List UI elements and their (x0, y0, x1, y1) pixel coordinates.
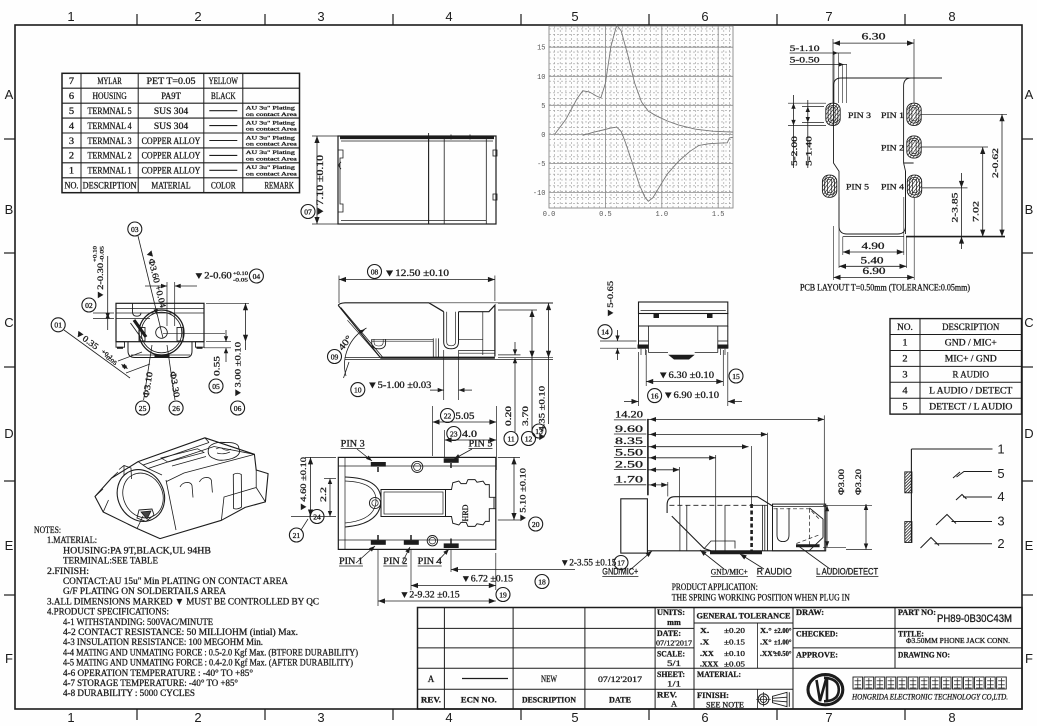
svg-text:-0.05: -0.05 (100, 246, 106, 262)
svg-text:5: 5 (571, 9, 578, 24)
svg-text:26: 26 (172, 404, 180, 413)
svg-text:3: 3 (317, 710, 324, 725)
svg-text:NO.: NO. (897, 322, 913, 332)
svg-text:4: 4 (445, 710, 452, 725)
svg-text:PCB LAYOUT T=0.50mm (TOLERANCE: PCB LAYOUT T=0.50mm (TOLERANCE:0.05mm) (800, 283, 970, 293)
svg-text:COPPER ALLOY: COPPER ALLOY (142, 151, 201, 161)
svg-text:▼2-0.30: ▼2-0.30 (95, 262, 105, 300)
svg-text:PH89-0B30C43M: PH89-0B30C43M (937, 613, 1012, 625)
svg-text:REMARK: REMARK (264, 181, 294, 191)
svg-text:5.40: 5.40 (861, 256, 884, 266)
svg-text:on contact Area: on contact Area (246, 142, 298, 148)
svg-text:0.20: 0.20 (503, 405, 513, 426)
svg-text:15: 15 (537, 45, 545, 53)
svg-text:GENERAL TOLERANCE: GENERAL TOLERANCE (697, 611, 791, 621)
svg-text:6: 6 (69, 91, 75, 101)
svg-text:15: 15 (732, 372, 740, 381)
svg-text:2: 2 (194, 710, 201, 725)
svg-text:L AUDIO / DETECT: L AUDIO / DETECT (929, 385, 1013, 395)
svg-text:PIN 3: PIN 3 (848, 110, 872, 120)
svg-text:SEE NOTE: SEE NOTE (706, 701, 744, 710)
svg-text:.XXX: .XXX (700, 660, 719, 669)
svg-text:1.0: 1.0 (655, 211, 668, 219)
svg-text:-10: -10 (533, 190, 546, 198)
svg-text:MATERIAL:: MATERIAL: (697, 670, 741, 679)
svg-text:2: 2 (194, 9, 201, 24)
svg-text:DATE: DATE (609, 695, 631, 705)
svg-text:8: 8 (948, 710, 955, 725)
svg-text:ECN NO.: ECN NO. (461, 695, 497, 705)
svg-text:2-0.62: 2-0.62 (990, 148, 1000, 178)
svg-text:±0.50°: ±0.50° (774, 649, 792, 658)
svg-text:X.°: X.° (760, 626, 772, 635)
svg-text:4: 4 (902, 385, 908, 395)
svg-text:THE SPRING WORKING POSITION WH: THE SPRING WORKING POSITION WHEN PLUG IN (672, 594, 850, 604)
svg-text:L AUDIO/DETECT: L AUDIO/DETECT (816, 567, 878, 578)
svg-text:COLOR: COLOR (211, 181, 236, 191)
svg-text:10: 10 (354, 385, 362, 394)
svg-text:TERMNAL 5: TERMNAL 5 (88, 106, 133, 116)
svg-text:13: 13 (535, 427, 543, 436)
svg-text:±1.00°: ±1.00° (774, 638, 792, 647)
svg-text:YELLOW: YELLOW (209, 76, 239, 86)
svg-text:DATE:: DATE: (657, 629, 681, 638)
svg-text:▼6.90 ±0.10: ▼6.90 ±0.10 (663, 391, 719, 401)
svg-text:D: D (1024, 426, 1033, 441)
svg-text:06: 06 (234, 404, 242, 413)
svg-text:B: B (5, 202, 14, 217)
svg-text:D: D (4, 426, 13, 441)
svg-text:BLACK: BLACK (211, 91, 236, 101)
svg-text:7: 7 (825, 9, 832, 24)
svg-text:APPROVE:: APPROVE: (796, 651, 838, 660)
svg-text:14.20: 14.20 (615, 411, 643, 421)
svg-text:DRAW:: DRAW: (796, 608, 824, 617)
svg-text:TERMNAL 4: TERMNAL 4 (88, 121, 133, 131)
svg-text:on contact Area: on contact Area (246, 171, 298, 177)
svg-text:TERMNAL 3: TERMNAL 3 (88, 136, 133, 146)
svg-text:GND / MIC+: GND / MIC+ (945, 338, 997, 348)
svg-text:1: 1 (902, 338, 907, 348)
svg-text:PIN 4: PIN 4 (881, 182, 905, 192)
svg-text:5.05: 5.05 (455, 411, 475, 421)
svg-text:5/1: 5/1 (667, 659, 681, 668)
svg-text:2.2: 2.2 (318, 487, 328, 502)
svg-text:5-1.10: 5-1.10 (790, 43, 821, 53)
svg-text:02: 02 (85, 301, 93, 310)
svg-text:±2.00°: ±2.00° (774, 626, 792, 635)
svg-text:DESCRIPTION: DESCRIPTION (522, 695, 577, 705)
svg-text:5: 5 (902, 401, 908, 411)
svg-text:.XX: .XX (700, 649, 714, 658)
svg-text:0.5: 0.5 (599, 211, 612, 219)
svg-text:FINISH:: FINISH: (697, 691, 729, 700)
svg-text:-5: -5 (537, 161, 545, 169)
svg-text:20: 20 (532, 520, 540, 529)
svg-text:5: 5 (69, 106, 75, 116)
svg-text:GND/MIC+: GND/MIC+ (711, 568, 748, 577)
svg-text:24: 24 (313, 512, 321, 521)
svg-text:5.50: 5.50 (615, 448, 643, 458)
svg-text:E: E (5, 538, 14, 553)
svg-text:UNITS:: UNITS: (657, 608, 685, 617)
svg-text:▼4.60 ±0.10: ▼4.60 ±0.10 (298, 456, 308, 512)
svg-text:07/12'2017: 07/12'2017 (656, 639, 692, 648)
svg-text:0: 0 (541, 132, 545, 140)
svg-text:Φ3.20: Φ3.20 (853, 468, 863, 495)
svg-text:TERMNAL 1: TERMNAL 1 (88, 166, 132, 176)
svg-text:5-1.40: 5-1.40 (804, 135, 814, 166)
svg-text:HONGRIDA ELECTRONIC TECHNOLOGY: HONGRIDA ELECTRONIC TECHNOLOGY CO,LTD. (851, 692, 1008, 702)
svg-text:1: 1 (997, 442, 1004, 457)
svg-text:on contact Area: on contact Area (246, 127, 298, 133)
svg-text:NEW: NEW (541, 674, 557, 684)
svg-text:COPPER ALLOY: COPPER ALLOY (142, 166, 201, 176)
svg-text:AU 3u" Plating: AU 3u" Plating (246, 135, 295, 141)
svg-text:MATERIAL: MATERIAL (151, 181, 190, 191)
svg-text:mm: mm (667, 618, 681, 627)
svg-text:2.50: 2.50 (615, 460, 643, 470)
svg-text:DETECT / L AUDIO: DETECT / L AUDIO (929, 401, 1013, 411)
svg-text:▼2-0.60: ▼2-0.60 (194, 271, 233, 281)
svg-text:2: 2 (69, 151, 74, 161)
svg-text:MIC+ / GND: MIC+ / GND (945, 354, 998, 364)
svg-text:5-2.00: 5-2.00 (789, 135, 799, 166)
svg-text:07: 07 (304, 207, 312, 216)
svg-text:19: 19 (499, 590, 507, 599)
svg-text:SCALE:: SCALE: (657, 650, 685, 659)
svg-text:CHECKED:: CHECKED: (796, 630, 838, 639)
svg-text:B: B (1025, 202, 1034, 217)
svg-text:4: 4 (69, 121, 75, 131)
svg-text:18: 18 (538, 577, 546, 586)
svg-text:3: 3 (317, 9, 324, 24)
svg-text:PRODUCT APPLICATION:: PRODUCT APPLICATION: (672, 583, 758, 593)
svg-text:23: 23 (450, 429, 458, 438)
svg-text:6: 6 (701, 710, 708, 725)
svg-text:MYLAR: MYLAR (97, 76, 122, 86)
svg-text:04: 04 (253, 272, 261, 281)
svg-text:X.: X. (700, 626, 709, 635)
svg-text:PIN 4: PIN 4 (418, 556, 443, 566)
svg-text:PIN 5: PIN 5 (469, 439, 494, 449)
svg-text:REV.: REV. (421, 695, 441, 705)
svg-text:1/1: 1/1 (667, 680, 681, 689)
svg-text:+0.10: +0.10 (93, 246, 99, 262)
svg-text:PIN 2: PIN 2 (881, 143, 904, 153)
svg-text:PIN 3: PIN 3 (341, 439, 366, 449)
svg-text:1.70: 1.70 (615, 476, 643, 486)
svg-text:on contact Area: on contact Area (246, 112, 298, 118)
svg-text:2: 2 (902, 354, 907, 364)
svg-text:12: 12 (525, 434, 533, 443)
svg-text:4.0: 4.0 (462, 429, 478, 439)
svg-text:F: F (1025, 651, 1033, 666)
svg-text:▼5-0.65: ▼5-0.65 (605, 280, 615, 318)
svg-text:1: 1 (67, 710, 74, 725)
svg-text:PIN 5: PIN 5 (846, 182, 870, 192)
svg-text:Φ3.00: Φ3.00 (836, 468, 846, 495)
svg-text:-0.05: -0.05 (233, 278, 248, 284)
svg-text:07/12'2017: 07/12'2017 (598, 674, 643, 684)
svg-text:PA9T: PA9T (161, 91, 181, 101)
svg-text:6: 6 (701, 9, 708, 24)
svg-text:▼12.50 ±0.10: ▼12.50 ±0.10 (384, 269, 449, 279)
svg-text:▼5.10 ±0.10: ▼5.10 ±0.10 (518, 467, 528, 523)
svg-text:SUS 304: SUS 304 (154, 106, 189, 116)
svg-text:▼6.30 ±0.10: ▼6.30 ±0.10 (658, 371, 714, 381)
svg-text:2: 2 (997, 536, 1004, 551)
svg-text:PIN 1: PIN 1 (339, 556, 363, 566)
svg-text:AU 3u" Plating: AU 3u" Plating (246, 165, 295, 171)
svg-text:SUS 304: SUS 304 (154, 121, 189, 131)
svg-text:Φ3.50MM PHONE JACK CONN.: Φ3.50MM PHONE JACK CONN. (906, 637, 1010, 645)
svg-text:8: 8 (948, 9, 955, 24)
svg-text:DESCRIPTION: DESCRIPTION (942, 322, 1000, 332)
svg-text:PIN 2: PIN 2 (383, 556, 407, 566)
svg-text:.X°: .X° (760, 638, 772, 647)
svg-text:7.02: 7.02 (971, 201, 981, 222)
svg-text:R AUDIO: R AUDIO (953, 370, 990, 380)
svg-text:5-0.50: 5-0.50 (790, 55, 821, 65)
svg-text:HRD: HRD (461, 504, 470, 521)
svg-text:±0.10: ±0.10 (724, 649, 745, 658)
svg-text:▼2-9.32 ±0.15: ▼2-9.32 ±0.15 (400, 590, 461, 600)
svg-text:3: 3 (69, 136, 75, 146)
svg-text:▼6.72 ±0.15: ▼6.72 ±0.15 (461, 574, 514, 584)
svg-text:PART NO:: PART NO: (898, 608, 936, 617)
svg-text:A: A (5, 87, 14, 102)
svg-text:10: 10 (537, 74, 545, 82)
svg-text:25: 25 (139, 404, 147, 413)
svg-text:9.60: 9.60 (615, 425, 643, 435)
svg-text:21: 21 (293, 531, 301, 540)
svg-text:TERMNAL 2: TERMNAL 2 (88, 151, 132, 161)
svg-text:09: 09 (331, 352, 339, 361)
svg-text:on contact Area: on contact Area (246, 157, 298, 163)
svg-text:2-3.85: 2-3.85 (950, 192, 960, 223)
svg-text:AU 3u" Plating: AU 3u" Plating (246, 105, 295, 111)
svg-text:±0.15: ±0.15 (724, 638, 745, 647)
svg-text:08: 08 (371, 267, 379, 276)
svg-text:5: 5 (571, 710, 578, 725)
svg-text:6.90: 6.90 (863, 267, 886, 277)
svg-text:1: 1 (67, 9, 74, 24)
svg-text:14: 14 (601, 328, 609, 337)
svg-text:PET T=0.05: PET T=0.05 (147, 76, 197, 86)
svg-text:5: 5 (541, 103, 545, 111)
svg-text:6.30: 6.30 (862, 33, 886, 43)
svg-text:5: 5 (997, 466, 1004, 481)
svg-text:A: A (428, 674, 435, 684)
svg-text:C: C (4, 315, 13, 330)
svg-text:HOUSING: HOUSING (92, 91, 127, 101)
svg-text:1: 1 (69, 166, 74, 176)
svg-text:16: 16 (651, 391, 659, 400)
svg-text:A: A (671, 699, 678, 709)
svg-text:+0.10: +0.10 (233, 271, 248, 277)
svg-text:AU 3u" Plating: AU 3u" Plating (246, 120, 295, 126)
svg-text:NO.: NO. (65, 181, 79, 191)
svg-text:4-8 DURABILITY : 5000 CYCLES: 4-8 DURABILITY : 5000 CYCLES (63, 688, 195, 699)
svg-text:4.90: 4.90 (862, 242, 885, 252)
svg-text:.X: .X (700, 638, 710, 647)
svg-text:0.55: 0.55 (212, 355, 222, 376)
svg-text:11: 11 (507, 434, 515, 443)
svg-text:COPPER ALLOY: COPPER ALLOY (142, 136, 201, 146)
svg-text:▼5-1.00 ±0.03: ▼5-1.00 ±0.03 (367, 381, 431, 391)
svg-text:7: 7 (69, 76, 75, 86)
svg-text:PIN 1: PIN 1 (881, 110, 904, 120)
svg-text:3: 3 (902, 370, 908, 380)
svg-text:SHEET:: SHEET: (657, 670, 685, 679)
svg-text:▼3.00 ±0.10: ▼3.00 ±0.10 (233, 341, 243, 398)
svg-text:05: 05 (212, 382, 220, 391)
svg-text:DRAWING NO:: DRAWING NO: (898, 651, 950, 660)
svg-text:C: C (1024, 315, 1033, 330)
svg-text:A: A (1025, 87, 1034, 102)
svg-text:03: 03 (131, 225, 139, 234)
svg-text:4: 4 (445, 9, 452, 24)
svg-text:F: F (5, 651, 13, 666)
svg-text:3: 3 (997, 514, 1004, 529)
svg-text:0.0: 0.0 (543, 211, 556, 219)
svg-text:7: 7 (825, 710, 832, 725)
svg-text:1.5: 1.5 (712, 211, 725, 219)
svg-text:▼7.10 ±0.10: ▼7.10 ±0.10 (316, 155, 326, 217)
svg-text:3.70: 3.70 (520, 405, 530, 426)
svg-text:±0.20: ±0.20 (724, 626, 745, 635)
svg-text:22: 22 (444, 411, 452, 420)
svg-text:4: 4 (997, 489, 1004, 504)
svg-text:AU 3u" Plating: AU 3u" Plating (246, 150, 295, 156)
svg-text:DESCRIPTION: DESCRIPTION (83, 181, 137, 191)
svg-text:±0.05: ±0.05 (724, 660, 745, 669)
svg-text:01: 01 (54, 321, 62, 330)
svg-text:8.35: 8.35 (615, 437, 643, 447)
svg-text:E: E (1025, 538, 1034, 553)
